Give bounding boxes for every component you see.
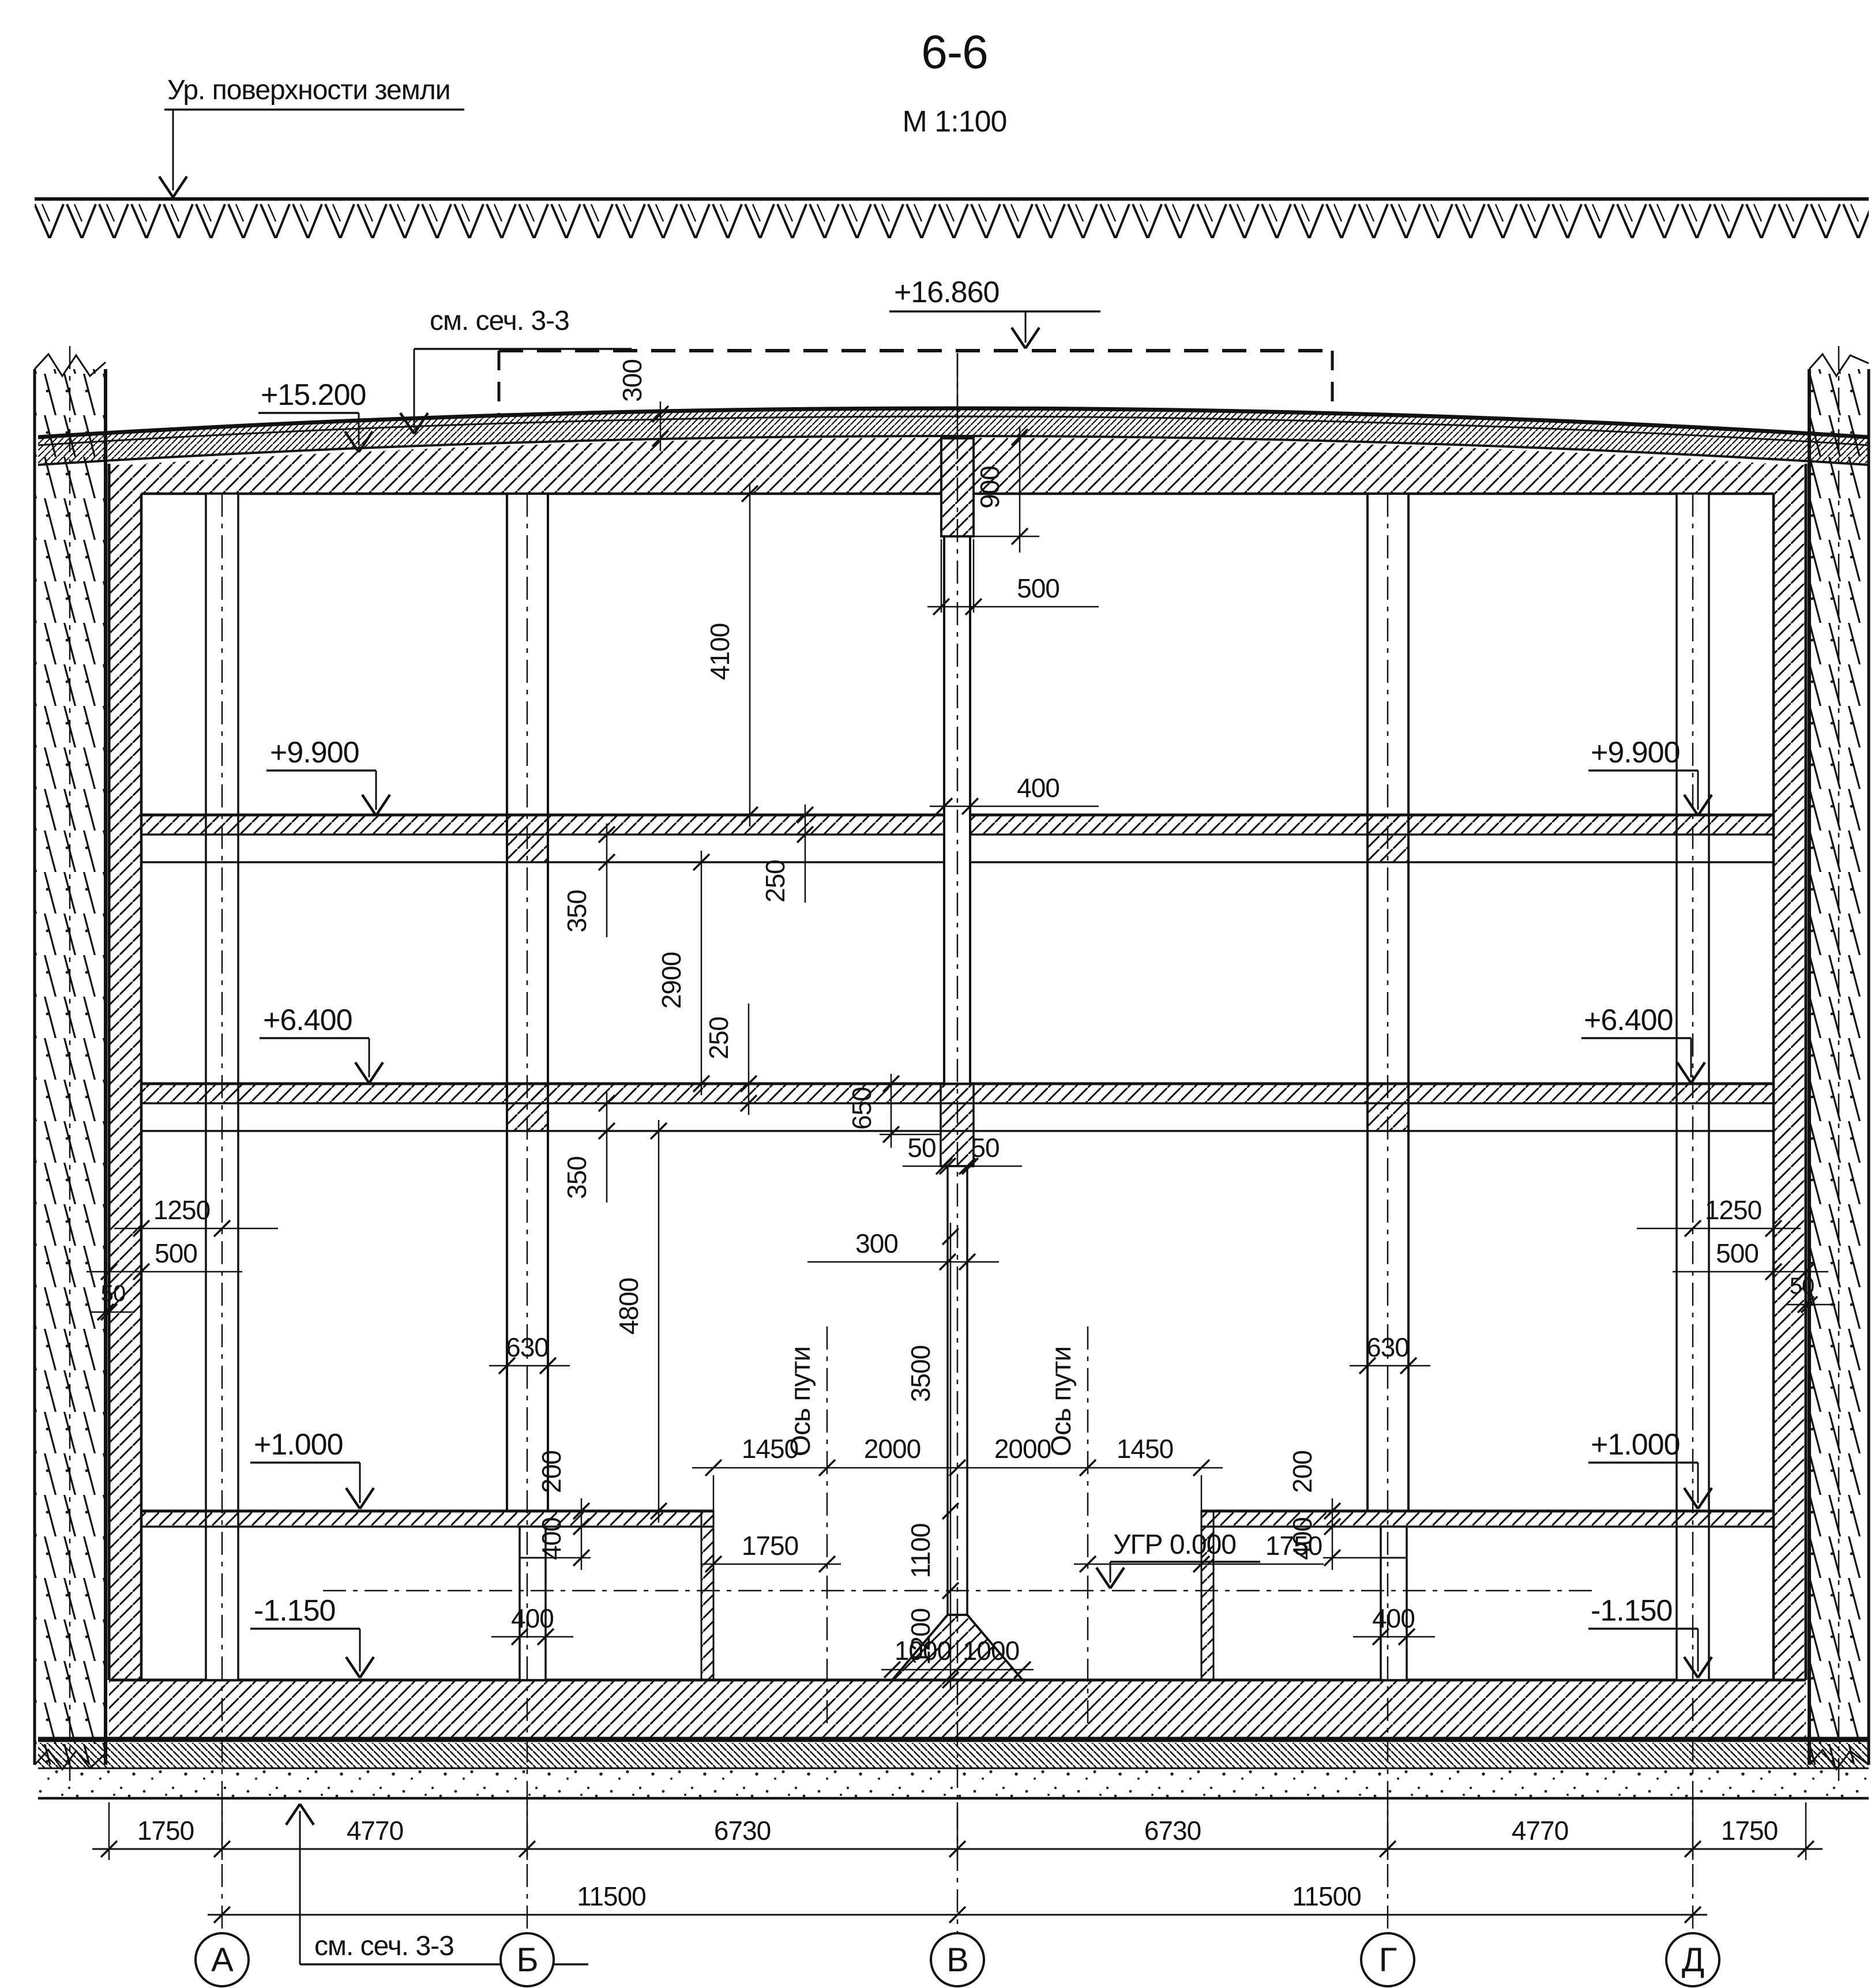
svg-text:300: 300 bbox=[855, 1228, 898, 1258]
svg-text:УГР 0.000: УГР 0.000 bbox=[1113, 1529, 1236, 1560]
elevation-l3-left: +9.900 bbox=[266, 736, 390, 816]
foundation-slab bbox=[38, 1680, 1869, 1798]
axis-bubble-g: Г bbox=[1379, 1941, 1397, 1979]
svg-text:4770: 4770 bbox=[347, 1816, 403, 1846]
drawing-title: 6-6 bbox=[921, 26, 988, 78]
svg-text:1750: 1750 bbox=[137, 1816, 194, 1846]
svg-text:4800: 4800 bbox=[614, 1278, 644, 1335]
elevation-label: +16.860 bbox=[894, 276, 999, 309]
svg-text:1750: 1750 bbox=[1721, 1816, 1778, 1846]
svg-text:+9.900: +9.900 bbox=[1591, 736, 1680, 769]
svg-text:+1.000: +1.000 bbox=[1591, 1428, 1680, 1461]
svg-text:400: 400 bbox=[511, 1603, 554, 1633]
svg-text:+6.400: +6.400 bbox=[263, 1004, 352, 1037]
svg-text:2000: 2000 bbox=[864, 1434, 921, 1464]
axis-bubble-v: В bbox=[946, 1941, 968, 1979]
right-slurry-wall bbox=[1809, 346, 1869, 1788]
drawing-scale: М 1:100 bbox=[903, 105, 1007, 138]
svg-text:11500: 11500 bbox=[577, 1881, 646, 1911]
svg-text:350: 350 bbox=[562, 890, 592, 933]
svg-text:11500: 11500 bbox=[1292, 1881, 1361, 1911]
axis-bubble-a: А bbox=[211, 1941, 234, 1979]
svg-text:630: 630 bbox=[1366, 1332, 1409, 1362]
ground-level-label: Ур. поверхности земли bbox=[167, 75, 450, 106]
svg-text:1100: 1100 bbox=[906, 1524, 935, 1579]
svg-text:4100: 4100 bbox=[705, 623, 735, 680]
svg-text:-1.150: -1.150 bbox=[254, 1594, 335, 1628]
svg-text:+6.400: +6.400 bbox=[1584, 1004, 1673, 1037]
svg-text:+9.900: +9.900 bbox=[270, 736, 359, 769]
axis-bubble-b: Б bbox=[516, 1941, 538, 1979]
right-outer-wall bbox=[1774, 464, 1806, 1680]
svg-text:250: 250 bbox=[760, 860, 790, 903]
svg-text:50: 50 bbox=[907, 1133, 935, 1163]
dim-stack: 4100 250 350 2900 250 350 4800 bbox=[562, 483, 813, 1523]
svg-text:1250: 1250 bbox=[153, 1195, 210, 1225]
svg-text:500: 500 bbox=[155, 1238, 197, 1268]
drawing-sheet: 6-6 М 1:100 Ур. поверхности земли +16.86… bbox=[0, 0, 1871, 1988]
svg-text:1000: 1000 bbox=[963, 1636, 1019, 1666]
svg-text:2000: 2000 bbox=[994, 1434, 1051, 1464]
see-section-label: см. сеч. 3-3 bbox=[430, 306, 569, 336]
svg-text:900: 900 bbox=[975, 466, 1005, 509]
left-slurry-wall bbox=[35, 346, 106, 1788]
svg-text:1450: 1450 bbox=[1117, 1434, 1173, 1464]
ground-level-note: Ур. поверхности земли bbox=[159, 75, 464, 197]
section-6-6-drawing: 6-6 М 1:100 Ур. поверхности земли +16.86… bbox=[0, 0, 1871, 1988]
svg-text:400: 400 bbox=[1287, 1517, 1317, 1560]
svg-text:см. сеч. 3-3: см. сеч. 3-3 bbox=[314, 1931, 454, 1961]
svg-text:400: 400 bbox=[1017, 773, 1060, 803]
track-axis-left-label: Ось пути bbox=[786, 1347, 816, 1456]
svg-text:6730: 6730 bbox=[714, 1816, 771, 1846]
svg-text:650: 650 bbox=[847, 1087, 877, 1130]
rail-level-note: УГР 0.000 bbox=[1096, 1529, 1260, 1588]
left-outer-wall bbox=[109, 464, 141, 1680]
svg-text:630: 630 bbox=[506, 1332, 548, 1362]
elevation-clearance: +16.860 bbox=[889, 276, 1100, 348]
svg-text:500: 500 bbox=[1716, 1238, 1759, 1268]
svg-text:500: 500 bbox=[1017, 573, 1060, 603]
svg-text:200: 200 bbox=[1287, 1450, 1317, 1493]
elevation-platform-left: +1.000 bbox=[250, 1428, 374, 1509]
svg-text:3500: 3500 bbox=[906, 1346, 935, 1402]
svg-text:2900: 2900 bbox=[656, 952, 686, 1009]
elevation-l2-left: +6.400 bbox=[260, 1004, 383, 1083]
dim-notch-g: 200 400 400 bbox=[1287, 1450, 1435, 1645]
svg-text:1250: 1250 bbox=[1705, 1195, 1761, 1225]
dim-column-lower: 300 bbox=[807, 1228, 999, 1270]
svg-text:4770: 4770 bbox=[1512, 1816, 1568, 1846]
svg-text:6730: 6730 bbox=[1144, 1816, 1201, 1846]
axis-bubble-d: Д bbox=[1682, 1941, 1704, 1979]
ground-surface bbox=[35, 199, 1869, 238]
dim-bottom-row1: 1750 4770 6730 6730 4770 1750 bbox=[92, 1802, 1823, 1860]
svg-text:50: 50 bbox=[101, 1281, 126, 1306]
svg-text:+1.000: +1.000 bbox=[254, 1428, 343, 1461]
svg-text:50: 50 bbox=[1790, 1273, 1814, 1299]
svg-text:200: 200 bbox=[536, 1450, 566, 1493]
svg-text:-1.150: -1.150 bbox=[1591, 1594, 1672, 1628]
svg-text:350: 350 bbox=[562, 1156, 592, 1199]
svg-text:1750: 1750 bbox=[742, 1531, 798, 1561]
svg-text:250: 250 bbox=[704, 1017, 734, 1059]
track-axis-right-label: Ось пути bbox=[1046, 1347, 1077, 1456]
svg-text:300: 300 bbox=[617, 359, 647, 402]
svg-text:50: 50 bbox=[971, 1133, 999, 1163]
elevation-label: +15.200 bbox=[261, 378, 366, 412]
svg-text:400: 400 bbox=[1372, 1603, 1415, 1633]
elevation-invert-left: -1.150 bbox=[250, 1594, 374, 1678]
svg-text:1000: 1000 bbox=[895, 1636, 951, 1666]
svg-text:400: 400 bbox=[536, 1517, 566, 1560]
